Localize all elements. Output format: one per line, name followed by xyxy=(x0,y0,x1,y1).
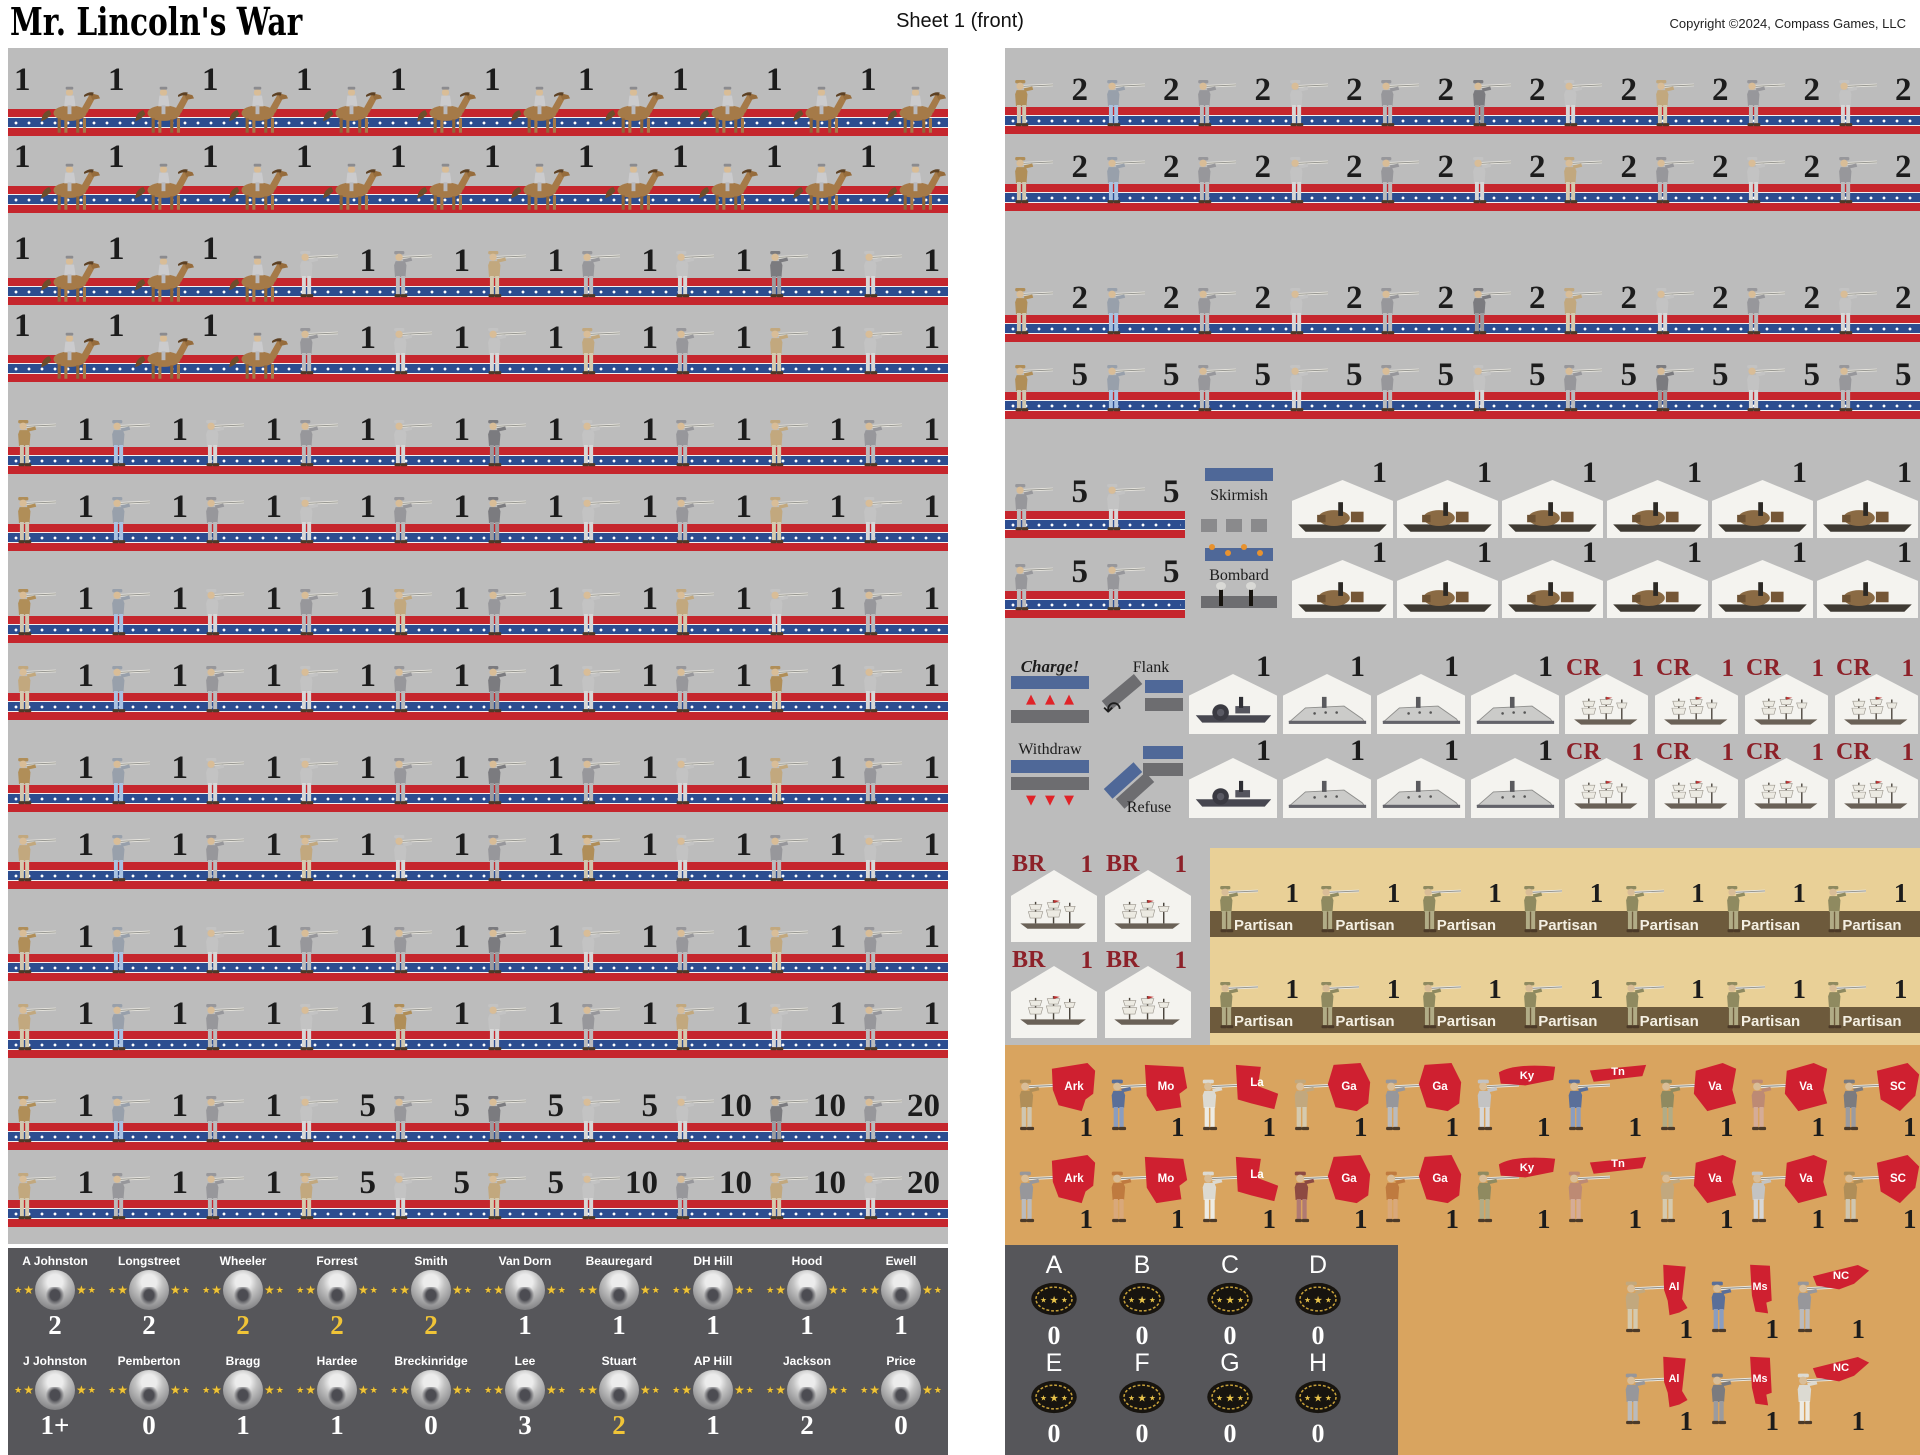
charge-arrows-icon: ▲▲▲ xyxy=(1005,693,1095,706)
bombard-counter: Bombard xyxy=(1191,542,1287,620)
explosion-icon xyxy=(1241,544,1247,550)
infantry-figure xyxy=(1101,285,1145,341)
unit-strength-value: 1 xyxy=(266,921,283,954)
state-shape-icon: Ga xyxy=(1324,1061,1374,1115)
command-marker-counter: A★★★0 xyxy=(1013,1253,1095,1347)
gunboat-counter: 1 xyxy=(1710,542,1815,620)
svg-text:★: ★ xyxy=(1149,1295,1156,1304)
infantry-figure xyxy=(200,1170,244,1226)
unit-strength-value: 5 xyxy=(1804,359,1821,392)
ship-strength-value: 1 xyxy=(1582,458,1597,488)
infantry-counter: 1 xyxy=(196,1153,290,1229)
gunboat-icon xyxy=(1506,499,1599,535)
infantry-figure xyxy=(1467,154,1511,210)
ship-strength-value: 1 xyxy=(1792,458,1807,488)
unit-strength-value: 1 xyxy=(642,660,659,693)
cavalry-counter: 1 xyxy=(478,139,572,215)
state-unit-counter: Ga1 xyxy=(1377,1055,1467,1143)
infantry-figure xyxy=(1833,154,1877,210)
cavalry-counter: 1 xyxy=(102,62,196,138)
cr-label: CR xyxy=(1836,740,1871,764)
gunboat-counter: 1 xyxy=(1290,462,1395,540)
partisan-strength-value: 1 xyxy=(1488,976,1502,1003)
state-unit-counter: Mo1 xyxy=(1103,1147,1193,1235)
state-unit-counter: Ga1 xyxy=(1377,1147,1467,1235)
unit-strength-value: 5 xyxy=(1255,359,1272,392)
unit-strength-value: 1 xyxy=(78,1090,95,1123)
infantry-figure xyxy=(1101,481,1145,537)
svg-text:★: ★ xyxy=(1128,1393,1135,1402)
unit-strength-value: 1 xyxy=(78,752,95,785)
sailing-ship-icon xyxy=(1748,693,1824,730)
state-unit-value: 1 xyxy=(1446,1114,1460,1141)
infantry-figure xyxy=(1009,285,1053,341)
unit-strength-value: 2 xyxy=(1438,151,1455,184)
rank-star-icon: ★ xyxy=(202,1386,210,1395)
command-value: 0 xyxy=(1101,1421,1183,1447)
leader-value: 0 xyxy=(102,1412,196,1439)
infantry-counter: 1 xyxy=(478,646,572,722)
svg-text:★: ★ xyxy=(1040,1295,1047,1304)
svg-text:★: ★ xyxy=(1149,1393,1156,1402)
unit-strength-value: 1 xyxy=(108,233,125,266)
command-value: 0 xyxy=(1189,1323,1271,1349)
unit-strength-value: 1 xyxy=(672,141,689,174)
br-label: BR xyxy=(1106,948,1139,972)
infantry-figure xyxy=(482,663,526,719)
leader-portrait xyxy=(505,1270,545,1310)
cavalry-figure xyxy=(508,161,572,211)
infantry-figure xyxy=(858,663,902,719)
infantry-figure xyxy=(12,924,56,980)
cr-ship-counter: CR1 xyxy=(1563,740,1650,820)
svg-text:★: ★ xyxy=(1304,1393,1311,1402)
leader-portrait xyxy=(505,1370,545,1410)
state-unit-counter: La1 xyxy=(1194,1147,1284,1235)
gunboat-counter: 1 xyxy=(1500,542,1605,620)
unit-strength-value: 5 xyxy=(1072,556,1089,589)
cavalry-counter: 1 xyxy=(8,231,102,307)
leader-counter: AP Hill★★★★1 xyxy=(666,1354,760,1450)
infantry-counter: 1 xyxy=(478,231,572,307)
leader-stars-and-portrait: ★★★★ xyxy=(760,1369,854,1411)
flank-gray-bar-icon xyxy=(1145,698,1183,711)
unit-strength-value: 1 xyxy=(736,752,753,785)
infantry-counter: 1 xyxy=(572,569,666,645)
state-unit-counter: Al1 xyxy=(1617,1257,1701,1345)
leader-name: AP Hill xyxy=(666,1354,760,1368)
rank-star-icon: ★ xyxy=(88,1286,96,1295)
infantry-counter: 1 xyxy=(384,984,478,1060)
counter-shape xyxy=(1565,674,1648,734)
infantry-counter: 1 xyxy=(8,646,102,722)
infantry-counter: 5 xyxy=(1097,345,1188,421)
ship-strength-value: 1 xyxy=(1477,458,1492,488)
ship-strength-value: 1 xyxy=(1792,538,1807,568)
infantry-counter: 1 xyxy=(196,477,290,553)
unit-strength-value: 1 xyxy=(548,660,565,693)
infantry-figure xyxy=(576,325,620,381)
unit-strength-value: 1 xyxy=(642,245,659,278)
counter-row: 5555555555 xyxy=(1005,345,1920,421)
rank-star-icon: ★ xyxy=(202,1286,210,1295)
leader-value: 2 xyxy=(102,1312,196,1339)
cr-ship-counter: CR1 xyxy=(1653,740,1740,820)
rank-star-icon: ★ xyxy=(170,1284,181,1296)
infantry-figure xyxy=(576,1093,620,1149)
infantry-counter: 2 xyxy=(1005,60,1096,136)
cavalry-figure xyxy=(226,161,290,211)
leader-portrait xyxy=(599,1370,639,1410)
infantry-figure xyxy=(670,494,714,550)
infantry-figure xyxy=(764,832,808,888)
flank-curve-arrow-icon: ↶ xyxy=(1103,700,1121,722)
state-unit-value: 1 xyxy=(1903,1206,1917,1233)
counter-row: 1111111111 xyxy=(8,139,948,215)
unit-strength-value: 5 xyxy=(642,1090,659,1123)
infantry-counter: 1 xyxy=(760,984,854,1060)
unit-strength-value: 1 xyxy=(14,141,31,174)
unit-strength-value: 10 xyxy=(813,1090,846,1123)
infantry-figure xyxy=(200,494,244,550)
svg-text:★: ★ xyxy=(1325,1393,1332,1402)
infantry-figure xyxy=(294,1093,338,1149)
state-shape-icon: Ky xyxy=(1497,1061,1557,1093)
state-shape-icon: Ark xyxy=(1049,1061,1099,1115)
leader-counter: Smith★★★★2 xyxy=(384,1254,478,1350)
leader-value: 2 xyxy=(196,1312,290,1339)
cr-ship-counter: CR1 xyxy=(1743,656,1830,736)
general-insignia-icon: ★★★ xyxy=(1116,1281,1168,1317)
partisan-label: Partisan xyxy=(1437,918,1496,933)
counter-shape xyxy=(1471,758,1559,818)
cavalry-figure xyxy=(38,253,102,303)
infantry-figure xyxy=(482,1170,526,1226)
unit-strength-value: 1 xyxy=(454,998,471,1031)
unit-strength-value: 1 xyxy=(454,414,471,447)
rank-star-icon: ★ xyxy=(587,1384,598,1396)
infantry-figure xyxy=(388,755,432,811)
cr-strength-value: 1 xyxy=(1812,656,1825,681)
unit-strength-value: 1 xyxy=(830,245,847,278)
state-unit-value: 1 xyxy=(1720,1206,1734,1233)
rank-star-icon: ★ xyxy=(108,1386,116,1395)
rank-star-icon: ★ xyxy=(546,1284,557,1296)
infantry-counter: 2 xyxy=(1371,60,1462,136)
unit-strength-value: 1 xyxy=(830,921,847,954)
svg-text:★: ★ xyxy=(1137,1296,1146,1307)
withdraw-label: Withdraw xyxy=(1005,742,1095,758)
partisan-counter: Partisan1 xyxy=(1311,856,1412,942)
svg-text:★: ★ xyxy=(1313,1296,1322,1307)
unit-strength-value: 1 xyxy=(266,998,283,1031)
unit-strength-value: 1 xyxy=(266,1090,283,1123)
unit-strength-value: 1 xyxy=(172,583,189,616)
general-insignia-icon: ★★★ xyxy=(1292,1379,1344,1415)
infantry-counter: 2 xyxy=(1554,137,1645,213)
leader-value: 1 xyxy=(760,1312,854,1339)
counter-shape xyxy=(1745,674,1828,734)
ship-strength-value: 1 xyxy=(1256,652,1271,682)
gunboat-icon xyxy=(1821,579,1914,615)
state-unit-value: 1 xyxy=(1766,1408,1780,1435)
infantry-counter: 2 xyxy=(1646,60,1737,136)
unit-strength-value: 1 xyxy=(78,829,95,862)
counter-shape xyxy=(1011,966,1097,1038)
rank-star-icon: ★ xyxy=(264,1284,275,1296)
cavalry-counter: 1 xyxy=(760,139,854,215)
infantry-counter: 5 xyxy=(1463,345,1554,421)
rank-star-icon: ★ xyxy=(399,1284,410,1296)
cavalry-counter: 1 xyxy=(196,308,290,384)
infantry-figure xyxy=(1284,285,1328,341)
state-shape-icon: Ga xyxy=(1415,1061,1465,1115)
state-shape-icon: Mo xyxy=(1141,1153,1191,1207)
ship-strength-value: 1 xyxy=(1444,736,1459,766)
unit-strength-value: 1 xyxy=(830,414,847,447)
infantry-figure xyxy=(764,755,808,811)
infantry-figure xyxy=(1558,362,1602,418)
state-shape-icon: Al xyxy=(1649,1263,1699,1317)
unit-strength-value: 1 xyxy=(360,998,377,1031)
leader-stars-and-portrait: ★★★★ xyxy=(290,1269,384,1311)
infantry-counter: 1 xyxy=(102,477,196,553)
state-unit-value: 1 xyxy=(1354,1114,1368,1141)
unit-strength-value: 2 xyxy=(1163,282,1180,315)
infantry-counter: 1 xyxy=(102,815,196,891)
bombard-target-icon xyxy=(1205,548,1273,561)
unit-strength-value: 5 xyxy=(1621,359,1638,392)
ship-strength-value: 1 xyxy=(1582,538,1597,568)
leader-stars-and-portrait: ★★★★ xyxy=(666,1269,760,1311)
infantry-counter: 1 xyxy=(290,400,384,476)
unit-strength-value: 10 xyxy=(625,1167,658,1200)
infantry-counter: 1 xyxy=(478,308,572,384)
refuse-counter: Refuse xyxy=(1099,740,1185,820)
infantry-counter: 1 xyxy=(384,308,478,384)
infantry-figure xyxy=(388,248,432,304)
ship-strength-value: 1 xyxy=(1350,736,1365,766)
unit-strength-value: 2 xyxy=(1712,74,1729,107)
infantry-figure xyxy=(294,325,338,381)
infantry-figure xyxy=(1650,77,1694,133)
unit-strength-value: 1 xyxy=(360,829,377,862)
infantry-counter: 1 xyxy=(102,569,196,645)
svg-text:La: La xyxy=(1250,1169,1264,1181)
infantry-counter: 1 xyxy=(102,1153,196,1229)
state-shape-icon: Va xyxy=(1690,1061,1740,1115)
ship-strength-value: 1 xyxy=(1538,736,1553,766)
rank-star-icon: ★ xyxy=(766,1286,774,1295)
cr-strength-value: 1 xyxy=(1902,656,1915,681)
state-unit-counter: Va1 xyxy=(1652,1055,1742,1143)
command-letter: A xyxy=(1013,1253,1095,1278)
infantry-counter: 1 xyxy=(8,569,102,645)
infantry-figure xyxy=(388,1170,432,1226)
partisan-label: Partisan xyxy=(1234,1014,1293,1029)
infantry-counter: 1 xyxy=(478,984,572,1060)
cavalry-figure xyxy=(132,330,196,380)
infantry-figure xyxy=(670,248,714,304)
infantry-figure xyxy=(12,1093,56,1149)
infantry-counter: 5 xyxy=(384,1153,478,1229)
gunboat-counter: 1 xyxy=(1815,542,1920,620)
partisan-label: Partisan xyxy=(1741,918,1800,933)
svg-text:Ark: Ark xyxy=(1064,1173,1084,1185)
partisan-counter: Partisan1 xyxy=(1413,952,1514,1038)
unit-strength-value: 1 xyxy=(296,141,313,174)
unit-strength-value: 1 xyxy=(484,64,501,97)
cavalry-counter: 1 xyxy=(196,231,290,307)
svg-text:Va: Va xyxy=(1708,1081,1722,1093)
cavalry-counter: 1 xyxy=(8,308,102,384)
counter-row: 2222222222 xyxy=(1005,137,1920,213)
gunboat-icon xyxy=(1611,579,1704,615)
unit-strength-value: 1 xyxy=(266,752,283,785)
infantry-figure xyxy=(1741,362,1785,418)
infantry-counter: 1 xyxy=(102,907,196,983)
ship-strength-value: 1 xyxy=(1477,538,1492,568)
unit-strength-value: 1 xyxy=(736,414,753,447)
leader-stars-and-portrait: ★★★★ xyxy=(666,1369,760,1411)
unit-strength-value: 2 xyxy=(1072,282,1089,315)
infantry-counter: 5 xyxy=(1097,462,1188,540)
cavalry-counter: 1 xyxy=(666,62,760,138)
cr-ship-counter: CR1 xyxy=(1833,656,1920,736)
infantry-counter: 1 xyxy=(102,984,196,1060)
svg-text:Va: Va xyxy=(1708,1173,1722,1185)
infantry-figure xyxy=(294,1001,338,1057)
leader-counter: Pemberton★★★★0 xyxy=(102,1354,196,1450)
leader-counter: Ewell★★★★1 xyxy=(854,1254,948,1350)
state-unit-counter: Va1 xyxy=(1743,1147,1833,1235)
infantry-figure xyxy=(1467,362,1511,418)
command-marker-counter: F★★★0 xyxy=(1101,1351,1183,1445)
cr-ship-counter: CR1 xyxy=(1743,740,1830,820)
leader-stars-and-portrait: ★★★★ xyxy=(572,1269,666,1311)
leader-name: Lee xyxy=(478,1354,572,1368)
infantry-counter: 1 xyxy=(384,400,478,476)
ship-strength-value: 1 xyxy=(1372,538,1387,568)
command-marker-counter: C★★★0 xyxy=(1189,1253,1271,1347)
partisan-counter: Partisan1 xyxy=(1311,952,1412,1038)
infantry-counter: 1 xyxy=(854,646,948,722)
infantry-counter: 5 xyxy=(1188,345,1279,421)
svg-text:Al: Al xyxy=(1669,1281,1680,1293)
unit-strength-value: 1 xyxy=(390,64,407,97)
state-shape-icon: Ark xyxy=(1049,1153,1099,1207)
state-unit-counter: Ga1 xyxy=(1286,1055,1376,1143)
unit-strength-value: 5 xyxy=(548,1167,565,1200)
infantry-counter: 1 xyxy=(102,738,196,814)
infantry-counter: 1 xyxy=(666,738,760,814)
infantry-counter: 1 xyxy=(572,738,666,814)
infantry-figure xyxy=(106,1170,150,1226)
infantry-counter: 2 xyxy=(1188,137,1279,213)
unit-strength-value: 5 xyxy=(1529,359,1546,392)
counter-shape xyxy=(1011,870,1097,942)
command-value: 0 xyxy=(1101,1323,1183,1349)
unit-strength-value: 1 xyxy=(360,322,377,355)
unit-strength-value: 1 xyxy=(830,491,847,524)
unit-strength-value: 1 xyxy=(360,660,377,693)
leader-name: A Johnston xyxy=(8,1254,102,1268)
unit-strength-value: 1 xyxy=(108,310,125,343)
leader-name: Hardee xyxy=(290,1354,384,1368)
leader-name: Van Dorn xyxy=(478,1254,572,1268)
flank-blue-bar-icon xyxy=(1145,680,1183,693)
gunboat-icon xyxy=(1401,499,1494,535)
cavalry-figure xyxy=(508,84,572,134)
infantry-figure xyxy=(576,417,620,473)
partisan-label: Partisan xyxy=(1640,1014,1699,1029)
partisan-counter: Partisan1 xyxy=(1616,952,1717,1038)
infantry-counter: 1 xyxy=(478,738,572,814)
unit-strength-value: 5 xyxy=(1346,359,1363,392)
state-units-panel: A★★★0B★★★0C★★★0D★★★0E★★★0F★★★0G★★★0H★★★0… xyxy=(1005,1045,1920,1455)
unit-strength-value: 1 xyxy=(454,491,471,524)
partisan-strength-value: 1 xyxy=(1793,976,1807,1003)
infantry-figure xyxy=(200,1093,244,1149)
leader-value: 2 xyxy=(384,1312,478,1339)
leader-counter: Lee★★★★3 xyxy=(478,1354,572,1450)
cavalry-figure xyxy=(320,161,384,211)
counter-shape xyxy=(1283,674,1371,734)
cr-strength-value: 1 xyxy=(1812,740,1825,765)
infantry-figure xyxy=(1650,285,1694,341)
infantry-figure xyxy=(200,586,244,642)
infantry-counter: 1 xyxy=(384,477,478,553)
infantry-counter: 1 xyxy=(666,646,760,722)
svg-text:★: ★ xyxy=(1049,1394,1058,1405)
partisan-counter: Partisan1 xyxy=(1514,856,1615,942)
infantry-figure xyxy=(1741,285,1785,341)
infantry-counter: 1 xyxy=(572,231,666,307)
rank-star-icon: ★ xyxy=(922,1284,933,1296)
cavalry-figure xyxy=(38,84,102,134)
gunboat-icon xyxy=(1506,579,1599,615)
infantry-counter: 1 xyxy=(196,400,290,476)
cavalry-counter: 1 xyxy=(760,62,854,138)
svg-text:★: ★ xyxy=(1313,1394,1322,1405)
unit-strength-value: 1 xyxy=(266,1167,283,1200)
svg-text:★: ★ xyxy=(1225,1296,1234,1307)
state-unit-value: 1 xyxy=(1720,1114,1734,1141)
unit-strength-value: 1 xyxy=(924,829,941,862)
explosion-icon xyxy=(1225,550,1231,556)
infantry-figure xyxy=(576,663,620,719)
br-strength-value: 1 xyxy=(1175,852,1188,877)
leader-portrait xyxy=(787,1270,827,1310)
unit-strength-value: 1 xyxy=(548,583,565,616)
state-unit-counter: Va1 xyxy=(1743,1055,1833,1143)
unit-strength-value: 1 xyxy=(860,141,877,174)
leader-portrait xyxy=(223,1370,263,1410)
unit-strength-value: 1 xyxy=(266,491,283,524)
partisan-strength-value: 1 xyxy=(1793,880,1807,907)
unit-strength-value: 2 xyxy=(1621,74,1638,107)
rank-star-icon: ★ xyxy=(934,1386,942,1395)
infantry-counter: 10 xyxy=(666,1076,760,1152)
ironclad-icon xyxy=(1287,777,1368,814)
unit-strength-value: 1 xyxy=(172,414,189,447)
unit-strength-value: 2 xyxy=(1895,74,1912,107)
cavalry-counter: 1 xyxy=(572,139,666,215)
state-unit-value: 1 xyxy=(1537,1206,1551,1233)
rank-star-icon: ★ xyxy=(76,1284,87,1296)
infantry-figure xyxy=(482,755,526,811)
infantry-counter: 1 xyxy=(854,308,948,384)
